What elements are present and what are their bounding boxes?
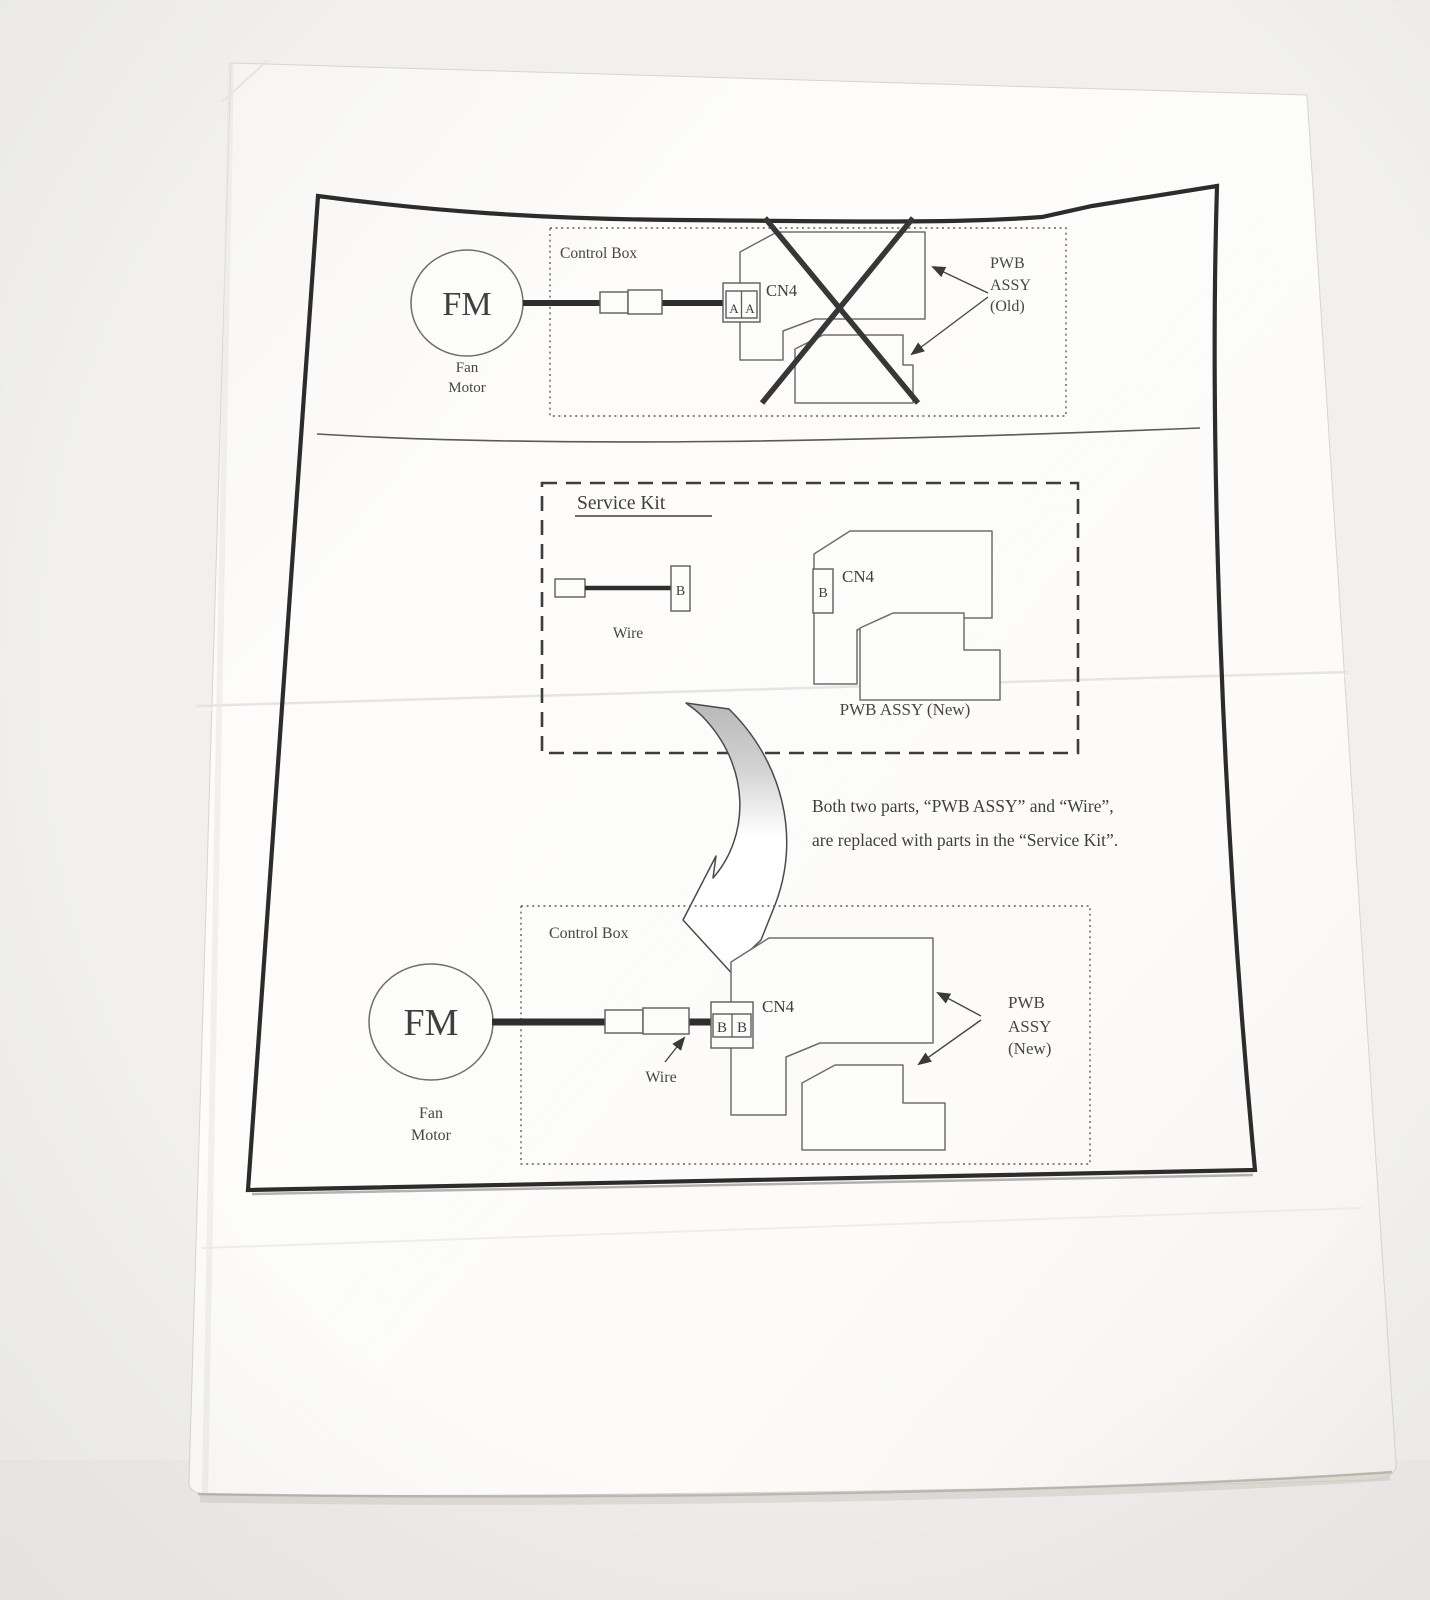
photo-vignette [0,0,1430,1600]
photo-of-instruction-sheet: Control Box FM Fan Motor A A CN4 PWB ASS… [0,0,1430,1600]
diagram-canvas: Control Box FM Fan Motor A A CN4 PWB ASS… [0,0,1430,1600]
